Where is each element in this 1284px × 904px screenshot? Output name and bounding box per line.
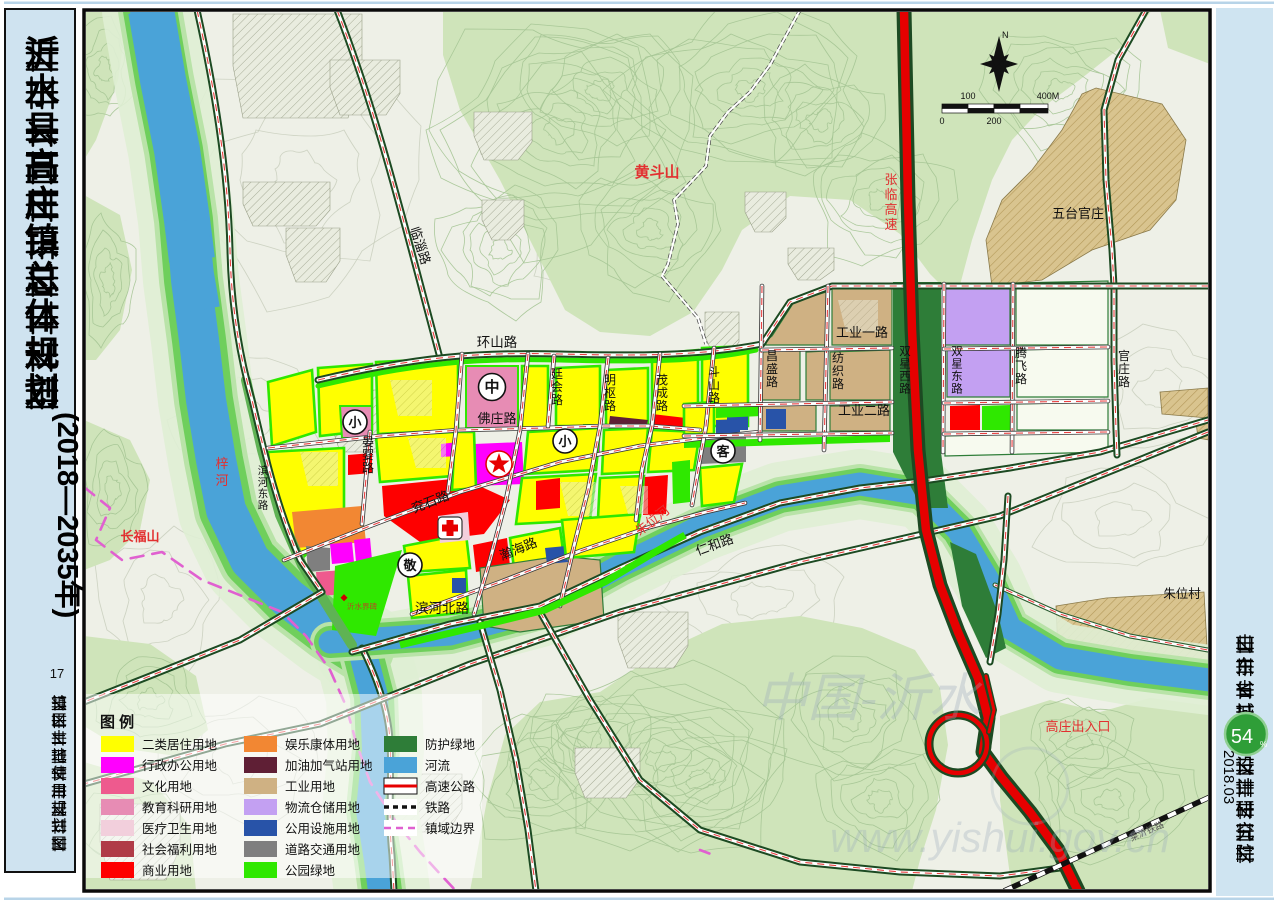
svg-text:纺织路: 纺织路 [832, 351, 844, 391]
svg-text:镇域边界: 镇域边界 [425, 822, 476, 836]
svg-text:茂成路: 茂成路 [656, 373, 668, 413]
svg-text:张临高速: 张临高速 [884, 172, 897, 232]
svg-text:黄斗山: 黄斗山 [634, 163, 679, 181]
svg-text:防护绿地: 防护绿地 [425, 737, 476, 752]
svg-text:400M: 400M [1037, 91, 1060, 101]
svg-text:五台官庄: 五台官庄 [1052, 206, 1104, 221]
svg-text:敬: 敬 [402, 558, 417, 573]
svg-text:中: 中 [484, 378, 499, 396]
svg-text:图 例: 图 例 [100, 713, 134, 731]
svg-text:滨河北路: 滨河北路 [415, 601, 469, 616]
svg-text:社会福利用地: 社会福利用地 [142, 842, 218, 857]
svg-text:官庄路: 官庄路 [1118, 348, 1130, 389]
svg-text:N: N [1002, 30, 1009, 40]
svg-text:%: % [1260, 740, 1267, 749]
svg-text:长福山: 长福山 [120, 529, 159, 544]
svg-text:晏婴路: 晏婴路 [362, 435, 374, 475]
svg-text:廷会路: 廷会路 [551, 367, 563, 407]
svg-text:2018.03: 2018.03 [1220, 750, 1237, 804]
svg-text:www.yishui.gov.cn: www.yishui.gov.cn [830, 814, 1170, 861]
svg-text:0: 0 [939, 116, 944, 126]
svg-text:朱位村: 朱位村 [1163, 586, 1201, 601]
svg-text:明枢路: 明枢路 [604, 373, 616, 413]
svg-text:沂水界碑: 沂水界碑 [347, 601, 377, 611]
svg-text:物流仓储用地: 物流仓储用地 [285, 800, 361, 815]
svg-text:中国-沂水: 中国-沂水 [755, 670, 982, 728]
svg-text:河流: 河流 [425, 759, 451, 773]
svg-text:200: 200 [986, 116, 1001, 126]
svg-text:高速公路: 高速公路 [425, 779, 476, 794]
svg-text:佛庄路: 佛庄路 [477, 411, 516, 426]
svg-text:环山路: 环山路 [477, 335, 518, 350]
svg-text:工业二路: 工业二路 [838, 403, 890, 418]
svg-text:娱乐康体用地: 娱乐康体用地 [285, 737, 361, 752]
svg-text:工业一路: 工业一路 [836, 325, 888, 340]
svg-text:铁路: 铁路 [425, 800, 451, 815]
svg-text:斗山路: 斗山路 [708, 365, 720, 405]
svg-text:17: 17 [50, 666, 64, 681]
svg-text:高庄出入口: 高庄出入口 [1045, 719, 1110, 734]
svg-text:54: 54 [1231, 726, 1253, 748]
svg-text:双星西路: 双星西路 [899, 345, 911, 396]
svg-text:滨河东路: 滨河东路 [258, 464, 269, 512]
svg-text:腾飞路: 腾飞路 [1015, 345, 1027, 386]
svg-text:行政办公用地: 行政办公用地 [142, 758, 218, 773]
svg-text:客: 客 [716, 444, 730, 459]
svg-text:教育科研用地: 教育科研用地 [142, 800, 218, 815]
svg-text:商业用地: 商业用地 [142, 863, 193, 878]
svg-text:小: 小 [558, 434, 571, 449]
svg-text:文化用地: 文化用地 [142, 779, 193, 794]
svg-text:加油加气站用地: 加油加气站用地 [285, 758, 373, 773]
svg-text:公用设施用地: 公用设施用地 [285, 821, 361, 836]
svg-text:公园绿地: 公园绿地 [285, 863, 336, 878]
svg-text:100: 100 [960, 91, 975, 101]
svg-text:道路交通用地: 道路交通用地 [285, 842, 361, 857]
svg-text:医疗卫生用地: 医疗卫生用地 [142, 822, 218, 836]
svg-text:昌盛路: 昌盛路 [766, 349, 778, 389]
svg-text:(2018—2035年): (2018—2035年) [51, 412, 85, 618]
svg-text:小: 小 [348, 415, 361, 430]
svg-text:二类居住用地: 二类居住用地 [142, 738, 218, 752]
svg-text:双星东路: 双星东路 [951, 345, 963, 396]
svg-text:工业用地: 工业用地 [285, 780, 336, 794]
